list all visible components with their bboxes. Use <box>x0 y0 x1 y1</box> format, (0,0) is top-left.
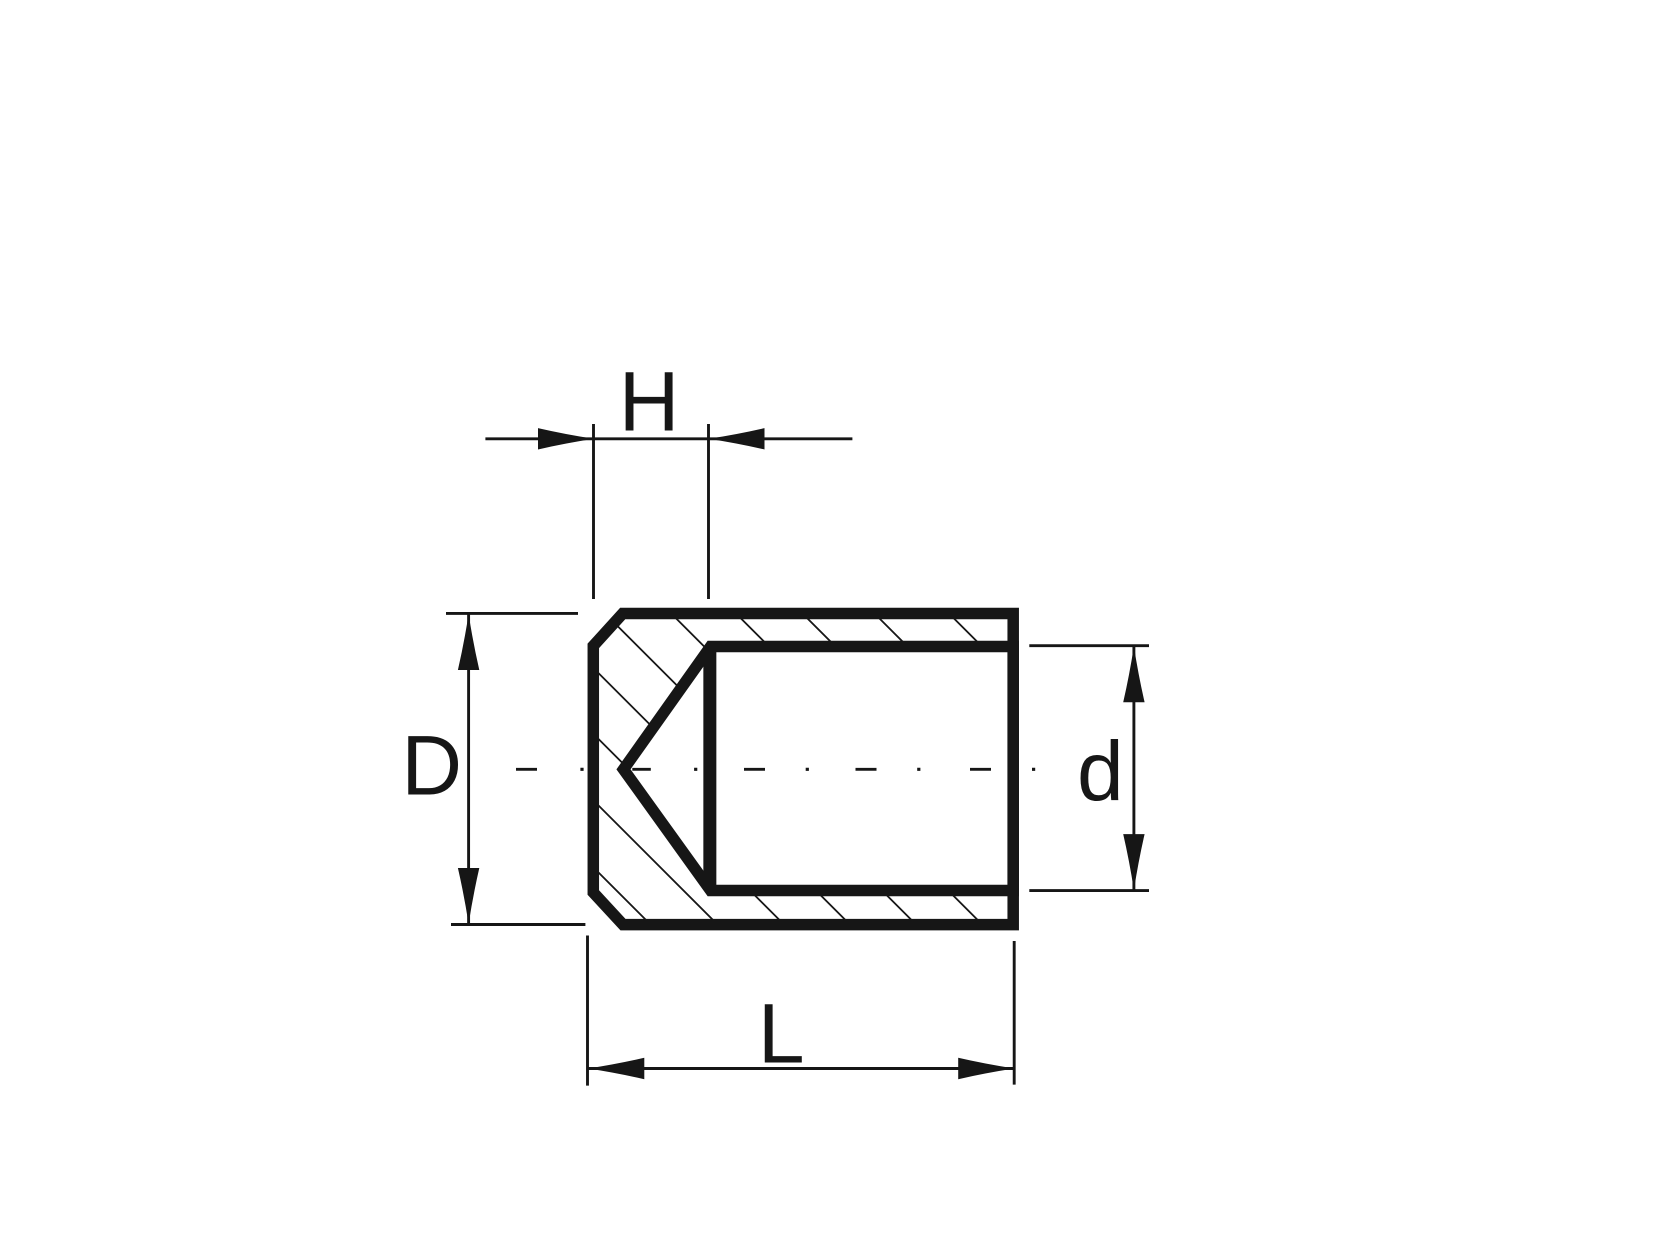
svg-text:d: d <box>1077 724 1124 818</box>
svg-text:H: H <box>619 355 680 449</box>
svg-text:D: D <box>401 718 462 812</box>
svg-text:L: L <box>758 986 805 1080</box>
